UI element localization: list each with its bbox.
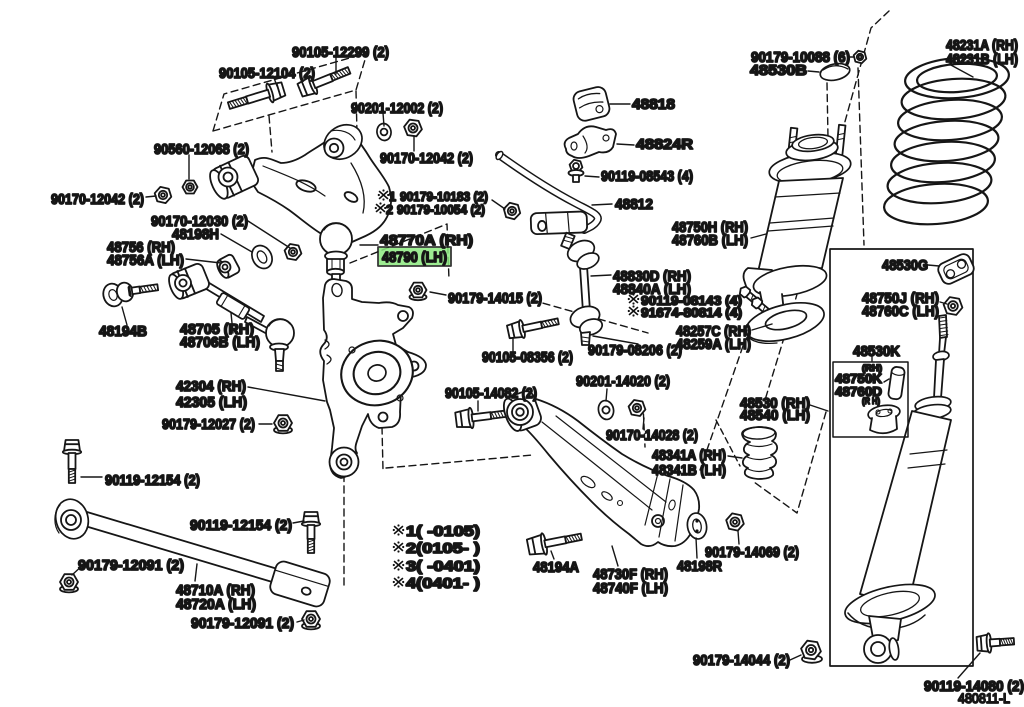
svg-text:48720A (LH): 48720A (LH) [176, 596, 256, 613]
svg-text:48530G: 48530G [882, 257, 928, 274]
svg-text:42304 (RH): 42304 (RH) [176, 378, 246, 395]
svg-text:90119-08543 (4): 90119-08543 (4) [601, 168, 693, 185]
svg-text:90170-12042 (2): 90170-12042 (2) [380, 150, 473, 167]
svg-text:48194A: 48194A [533, 559, 579, 576]
svg-text:90179-08206 (2): 90179-08206 (2) [588, 342, 682, 359]
svg-text:48341B (LH): 48341B (LH) [652, 462, 726, 479]
svg-text:4(0401- ): 4(0401- ) [406, 575, 480, 592]
svg-text:3( -0401): 3( -0401) [406, 558, 480, 575]
svg-text:48740F (LH): 48740F (LH) [593, 580, 668, 597]
svg-text:90179-10054 (2): 90179-10054 (2) [397, 202, 485, 217]
svg-text:90170-12042 (2): 90170-12042 (2) [51, 191, 144, 208]
svg-text:90179-12027 (2): 90179-12027 (2) [162, 416, 255, 433]
svg-text:2: 2 [386, 202, 393, 217]
svg-text:90105-08356 (2): 90105-08356 (2) [482, 349, 573, 366]
svg-text:48812: 48812 [615, 196, 653, 213]
svg-text:48259A (LH): 48259A (LH) [676, 336, 751, 353]
svg-text:90105-14082 (2): 90105-14082 (2) [445, 385, 537, 402]
svg-text:48540 (LH): 48540 (LH) [740, 407, 810, 424]
svg-text:90119-12154 (2): 90119-12154 (2) [105, 472, 200, 489]
svg-text:480811-L: 480811-L [958, 690, 1010, 706]
svg-text:90560-12068 (2): 90560-12068 (2) [154, 141, 249, 158]
svg-text:48760C (LH): 48760C (LH) [862, 303, 939, 320]
svg-text:90179-14015 (2): 90179-14015 (2) [448, 290, 542, 307]
svg-text:90179-14044 (2): 90179-14044 (2) [693, 652, 790, 669]
svg-text:48760B (LH): 48760B (LH) [672, 232, 748, 249]
svg-text:48198R: 48198R [677, 558, 722, 575]
svg-text:48756A (LH): 48756A (LH) [107, 252, 184, 269]
svg-text:1( -0105): 1( -0105) [406, 523, 480, 540]
svg-text:48530K: 48530K [853, 343, 900, 360]
svg-text:2(0105- ): 2(0105- ) [406, 540, 480, 557]
svg-text:48818: 48818 [632, 96, 675, 113]
svg-text:91674-80814 (4): 91674-80814 (4) [641, 305, 742, 320]
svg-text:48706B (LH): 48706B (LH) [180, 334, 260, 351]
svg-text:90105-12299 (2): 90105-12299 (2) [292, 44, 389, 61]
svg-text:90179-12091 (2): 90179-12091 (2) [191, 615, 294, 632]
svg-text:90201-12002 (2): 90201-12002 (2) [351, 100, 443, 117]
svg-text:90201-14020 (2): 90201-14020 (2) [576, 373, 670, 390]
svg-text:(R H): (R H) [862, 396, 880, 406]
svg-text:48770A (RH): 48770A (RH) [380, 232, 473, 249]
svg-text:48530B: 48530B [750, 62, 807, 79]
svg-text:48790 (LH): 48790 (LH) [382, 249, 447, 266]
svg-text:42305 (LH): 42305 (LH) [176, 394, 247, 411]
svg-text:90179-12091 (2): 90179-12091 (2) [78, 557, 184, 574]
svg-text:48231B (LH): 48231B (LH) [946, 51, 1018, 68]
svg-text:48194B: 48194B [99, 323, 147, 340]
svg-text:90105-12104 (2): 90105-12104 (2) [219, 65, 315, 82]
svg-text:90170-14028 (2): 90170-14028 (2) [606, 427, 698, 444]
svg-text:48198H: 48198H [172, 226, 219, 243]
svg-text:90119-12154 (2): 90119-12154 (2) [190, 517, 292, 534]
svg-text:48824R: 48824R [636, 136, 693, 153]
